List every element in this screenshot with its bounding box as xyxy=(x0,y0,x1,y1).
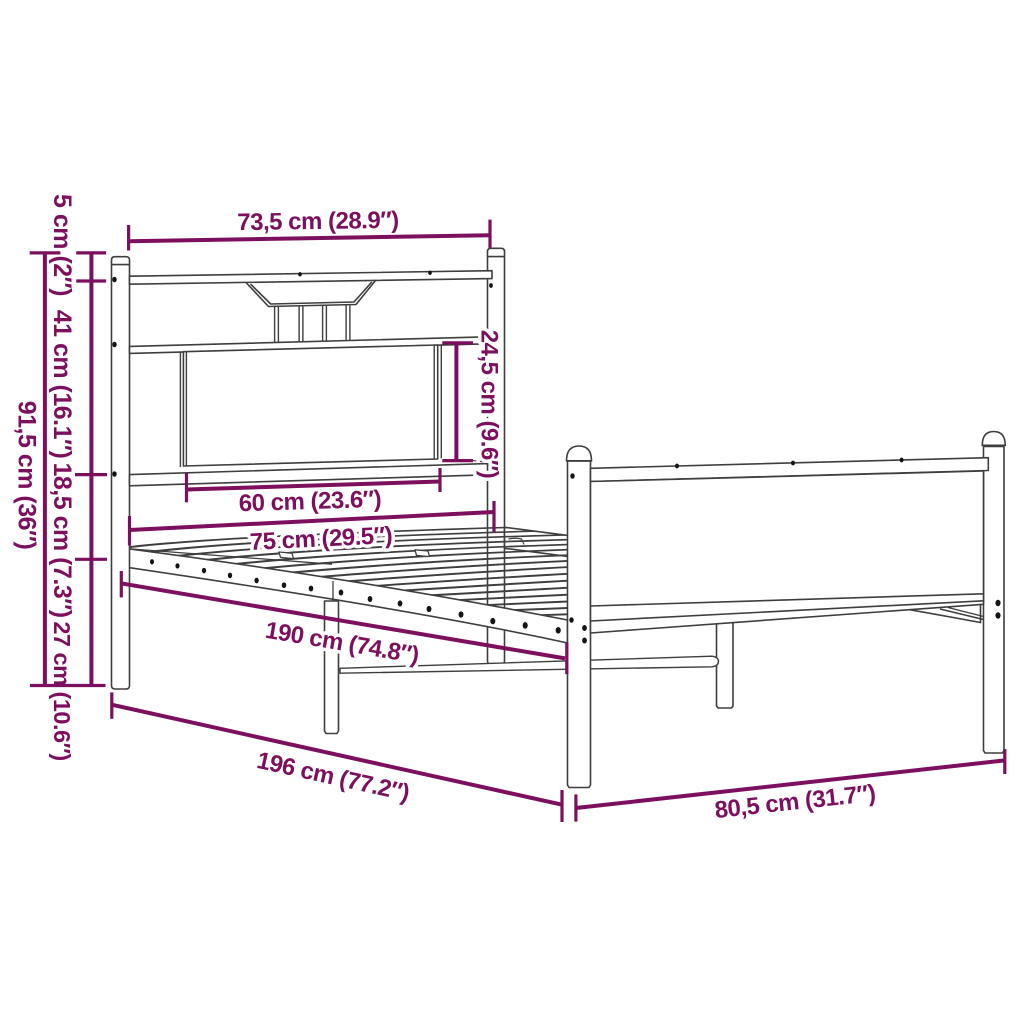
svg-text:73,5 cm (28.9″): 73,5 cm (28.9″) xyxy=(237,207,399,236)
svg-text:91,5 cm (36″): 91,5 cm (36″) xyxy=(13,401,41,550)
svg-text:41 cm (16.1″): 41 cm (16.1″) xyxy=(48,310,76,459)
svg-text:5 cm (2″): 5 cm (2″) xyxy=(48,194,76,296)
svg-text:60 cm (23.6″): 60 cm (23.6″) xyxy=(238,486,381,517)
svg-text:18,5 cm (7.3″): 18,5 cm (7.3″) xyxy=(48,462,76,617)
svg-text:27 cm (10.6″): 27 cm (10.6″) xyxy=(49,621,75,760)
svg-text:24,5 cm (9.6″): 24,5 cm (9.6″) xyxy=(476,330,503,479)
